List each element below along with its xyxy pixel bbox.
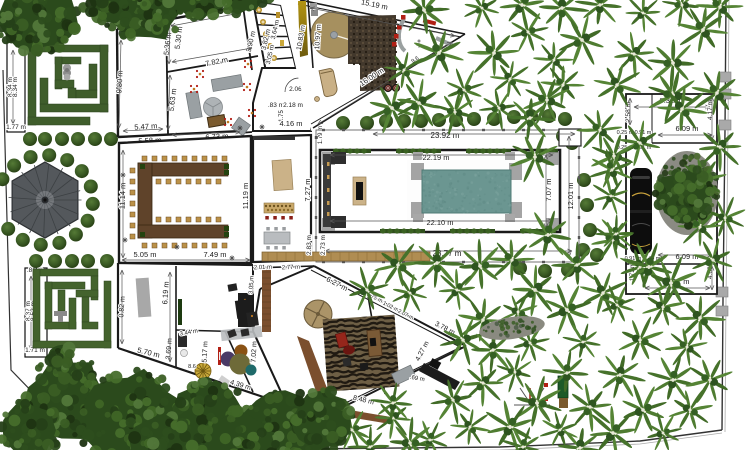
svg-text:2.01 m: 2.01 m [254, 265, 273, 272]
svg-text:7.02 m: 7.02 m [250, 341, 258, 363]
svg-text:22.10 m: 22.10 m [426, 218, 453, 227]
svg-text:5.17 m: 5.17 m [201, 341, 209, 363]
svg-text:2.73 m: 2.73 m [320, 235, 327, 255]
svg-text:11.14 m: 11.14 m [118, 182, 128, 209]
svg-text:5.05 m: 5.05 m [134, 250, 157, 259]
svg-text:4.16 m: 4.16 m [280, 119, 303, 128]
svg-text:7.49 m: 7.49 m [204, 250, 227, 259]
svg-text:.83 m: .83 m [268, 102, 284, 109]
svg-text:6.19 m: 6.19 m [160, 281, 171, 305]
svg-text:7.27 m: 7.27 m [303, 179, 312, 202]
svg-text:2.77 m: 2.77 m [282, 265, 301, 272]
svg-text:2.83 m: 2.83 m [306, 235, 313, 255]
svg-text:22.19 m: 22.19 m [422, 153, 449, 162]
svg-text:8.6: 8.6 [188, 364, 196, 370]
svg-text:2.58 m: 2.58 m [625, 102, 632, 122]
svg-text:1.77 m: 1.77 m [6, 124, 26, 131]
svg-text:1.79 m: 1.79 m [318, 126, 324, 144]
svg-text:8.34 m: 8.34 m [12, 77, 19, 97]
svg-text:12.01 m: 12.01 m [566, 182, 575, 209]
svg-text:3.05 m: 3.05 m [249, 276, 256, 295]
svg-text:11.19 m: 11.19 m [241, 183, 250, 210]
svg-text:23.92 m: 23.92 m [431, 131, 460, 140]
svg-text:2.18 m: 2.18 m [283, 102, 303, 109]
svg-text:9.80 m: 9.80 m [114, 70, 124, 93]
svg-text:6.09 m: 6.09 m [676, 252, 699, 261]
svg-text:7.07 m: 7.07 m [544, 179, 553, 202]
